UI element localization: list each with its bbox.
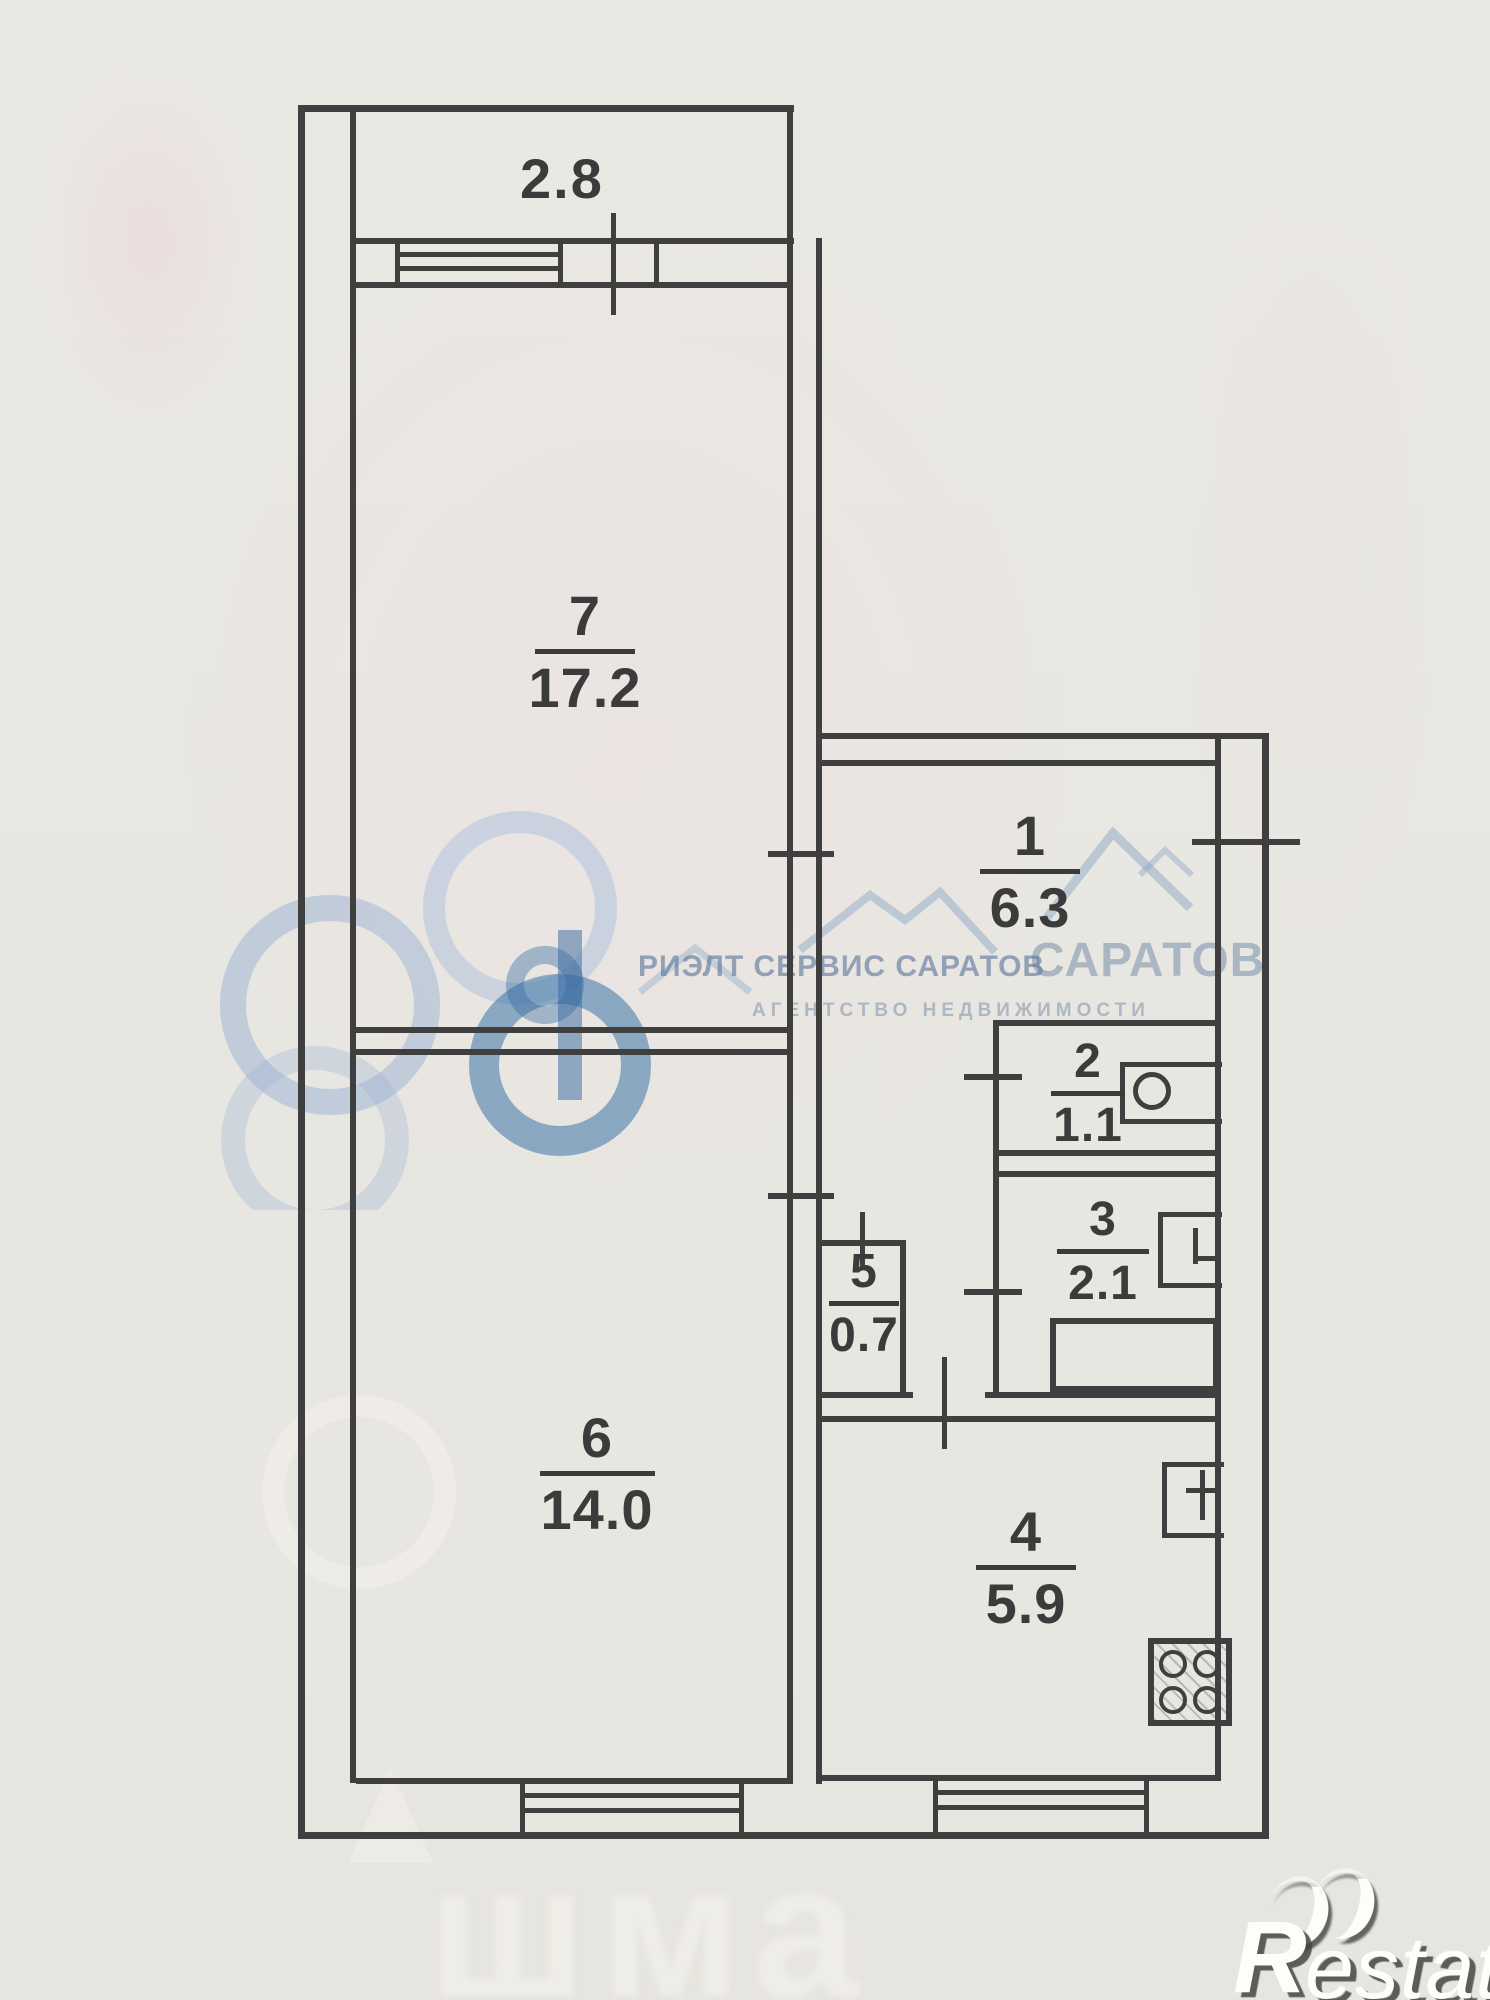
room-6-divider	[540, 1471, 655, 1476]
stove-burner-icon	[1193, 1686, 1221, 1714]
room-7-area: 17.2	[490, 660, 680, 716]
ghost-text-watermark: шма	[428, 1822, 872, 2000]
wall-7-6-lower	[356, 1049, 787, 1055]
room-2-divider	[1051, 1091, 1125, 1096]
room-4-label: 4 5.9	[930, 1504, 1122, 1632]
wall-balcony-bottom-outer	[350, 238, 794, 244]
window-kitchen-jamb-left	[933, 1775, 938, 1832]
wall-balcony-bottom-inner	[350, 282, 787, 288]
wall-left-outer	[298, 105, 305, 1839]
stove-burner-icon	[1159, 1650, 1187, 1678]
agency-name-watermark: РИЭЛТ СЕРВИС САРАТОВ	[638, 950, 1045, 984]
room-5-label: 5 0.7	[807, 1248, 921, 1360]
restate-wordmark: estate	[1305, 1924, 1490, 2000]
stove-burner-icon	[1193, 1650, 1221, 1678]
room-2-number: 2	[1008, 1038, 1168, 1086]
door-tick-room6	[768, 1193, 834, 1199]
stove-burner-icon	[1159, 1686, 1187, 1714]
wall-kitchen-top-lower	[822, 1416, 1221, 1422]
wall-balcony-right	[787, 105, 793, 245]
balcony-door-jamb	[654, 238, 659, 288]
room-2-label: 2 1.1	[1008, 1038, 1168, 1150]
room-5-area: 0.7	[807, 1312, 921, 1360]
wall-hall-top-inner	[822, 760, 1221, 766]
kitchen-sink-tap-v	[1200, 1470, 1205, 1520]
door-tick-room7	[768, 851, 834, 857]
wall-kitchen-top-upper-a	[822, 1392, 913, 1398]
wall-top	[298, 105, 794, 112]
window-room6-line2	[523, 1808, 741, 1813]
room-4-divider	[976, 1565, 1076, 1570]
stove-icon	[1148, 1638, 1232, 1726]
room-3-label: 3 2.1	[1023, 1196, 1183, 1308]
room-6-label: 6 14.0	[500, 1410, 694, 1538]
window-kitchen-line2	[935, 1805, 1146, 1810]
kitchen-sink-tap-h	[1186, 1488, 1217, 1493]
window-room6-jamb-right	[739, 1778, 744, 1837]
room-1-number: 1	[935, 808, 1125, 864]
agency-tagline-watermark: АГЕНТСТВО НЕДВИЖИМОСТИ	[752, 1000, 1150, 1022]
restate-logo: R estate	[1205, 1862, 1490, 2000]
room-4-area: 5.9	[930, 1576, 1122, 1632]
wall-bottom-outer	[298, 1832, 1269, 1839]
kitchen-door-tick	[942, 1357, 947, 1449]
room-7-label: 7 17.2	[490, 588, 680, 716]
room-2-area: 1.1	[1008, 1102, 1168, 1150]
room-3-number: 3	[1023, 1196, 1183, 1244]
window-room7-line2	[398, 266, 562, 271]
room-5-divider	[829, 1301, 899, 1306]
wall-bottom-inner-room6	[356, 1778, 787, 1784]
window-room7-jamb-right	[558, 238, 563, 288]
room-3-area: 2.1	[1023, 1260, 1183, 1308]
window-room7-jamb-left	[395, 238, 400, 288]
room-6-area: 14.0	[500, 1482, 694, 1538]
restate-initial: R	[1233, 1906, 1307, 2000]
window-room6-jamb-left	[520, 1778, 525, 1837]
room-6-number: 6	[500, 1410, 694, 1466]
room-7-divider	[535, 649, 635, 654]
window-room6-line1	[523, 1793, 741, 1798]
ghost-ring-watermark	[262, 1395, 456, 1589]
bathtub-icon	[1050, 1318, 1219, 1392]
kitchen-sink-icon	[1162, 1462, 1224, 1538]
wall-kitchen-top-upper-b	[985, 1392, 1221, 1398]
balcony-width-label: 2.8	[520, 146, 604, 211]
entrance-door-tick	[1192, 839, 1300, 845]
wall-hall-top-outer	[822, 733, 1269, 739]
window-room7-line1	[398, 252, 562, 257]
wall-2-3-lower	[993, 1171, 1221, 1177]
floorplan-page: РИЭЛТ СЕРВИС САРАТОВ САРАТОВ АГЕНТСТВО Н…	[0, 0, 1490, 2000]
agency-name-echo-watermark: САРАТОВ	[1030, 933, 1265, 988]
door-tick-room3	[964, 1289, 1022, 1295]
room-5-number: 5	[807, 1248, 921, 1296]
wall-center-left	[787, 245, 793, 1784]
room-7-number: 7	[490, 588, 680, 644]
window-kitchen-line1	[935, 1790, 1146, 1795]
wall-left-inner	[350, 112, 356, 1783]
wall-room2-top	[993, 1020, 1221, 1026]
room-4-number: 4	[930, 1504, 1122, 1560]
room-1-label: 1 6.3	[935, 808, 1125, 936]
room-1-divider	[980, 869, 1080, 874]
bathroom-sink-tap-h	[1193, 1256, 1217, 1261]
wall-7-6-upper	[356, 1027, 787, 1033]
wall-right-outer	[1262, 733, 1269, 1839]
window-kitchen-jamb-right	[1144, 1775, 1149, 1832]
wall-center-right	[816, 238, 822, 1784]
room-1-area: 6.3	[935, 880, 1125, 936]
balcony-door-tick	[611, 213, 616, 315]
wall-bottom-inner-kitchen	[822, 1775, 1221, 1781]
room-3-divider	[1057, 1249, 1149, 1254]
